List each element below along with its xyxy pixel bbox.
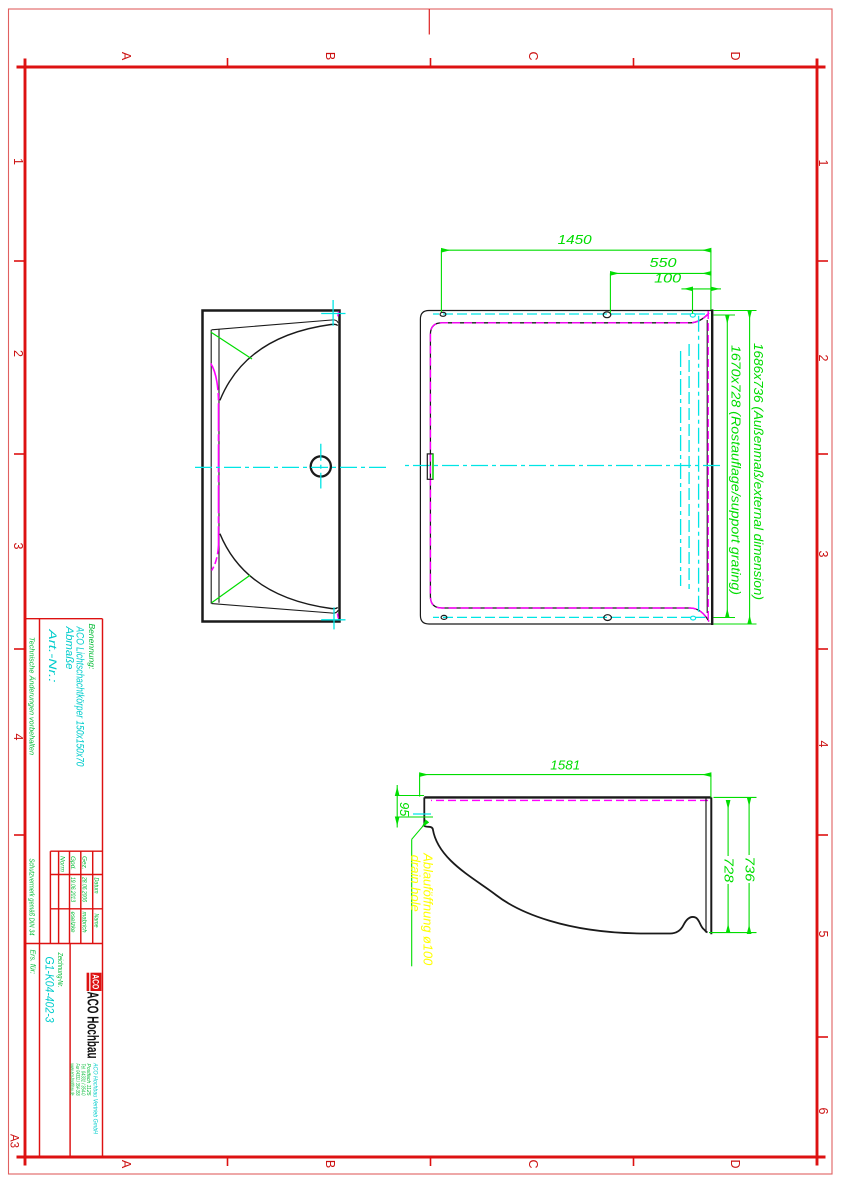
svg-text:100: 100 <box>654 271 682 286</box>
svg-text:D: D <box>728 1159 742 1168</box>
svg-text:Gez.: Gez. <box>81 856 88 870</box>
svg-text:C: C <box>526 1159 540 1168</box>
svg-text:1: 1 <box>816 160 830 167</box>
svg-text:19.06.2013: 19.06.2013 <box>69 877 76 902</box>
svg-text:2: 2 <box>816 355 830 362</box>
svg-text:ACO Hochbau: ACO Hochbau <box>84 992 101 1059</box>
svg-text:A3: A3 <box>8 1134 20 1148</box>
svg-text:5: 5 <box>816 931 830 938</box>
svg-text:4: 4 <box>11 734 25 741</box>
svg-text:mabrich: mabrich <box>81 912 88 933</box>
svg-text:550: 550 <box>650 255 678 270</box>
svg-text:Datum: Datum <box>93 878 100 894</box>
svg-text:Norm: Norm <box>59 856 66 872</box>
svg-text:Technische Änderungen vorbehal: Technische Änderungen vorbehalten <box>28 637 36 755</box>
svg-text:ACO Hochbau Vertrieb GmbH: ACO Hochbau Vertrieb GmbH <box>92 1062 98 1134</box>
svg-text:1: 1 <box>11 158 25 165</box>
svg-text:Abmaße: Abmaße <box>63 625 75 669</box>
svg-text:ACO Lichtschachtkörper 150x150: ACO Lichtschachtkörper 150x150x70 <box>74 626 86 767</box>
svg-text:Ers. für:: Ers. für: <box>29 950 36 975</box>
svg-text:Art.-Nr.:: Art.-Nr.: <box>46 628 58 682</box>
svg-text:eselzke: eselzke <box>69 912 76 933</box>
svg-text:Fax 04331 / 354-358: Fax 04331 / 354-358 <box>74 1064 80 1096</box>
svg-text:1686x736 (Außenmaß/external di: 1686x736 (Außenmaß/external dimension) <box>751 343 766 600</box>
svg-text:A: A <box>119 1160 133 1169</box>
svg-text:www.aco-hochbau.de: www.aco-hochbau.de <box>69 1064 75 1096</box>
svg-text:736: 736 <box>743 857 758 883</box>
svg-text:Postfach 1125: Postfach 1125 <box>85 1064 91 1096</box>
svg-text:drain hole: drain hole <box>408 855 423 912</box>
svg-text:A: A <box>119 52 133 61</box>
svg-text:1450: 1450 <box>558 232 593 247</box>
svg-text:Benennung:: Benennung: <box>87 624 97 670</box>
svg-text:6: 6 <box>816 1108 830 1115</box>
svg-text:Gpd.: Gpd. <box>69 856 76 870</box>
svg-text:3: 3 <box>11 543 25 550</box>
svg-text:D: D <box>728 51 742 60</box>
svg-text:Zeichnung-Nr.: Zeichnung-Nr. <box>56 952 63 988</box>
svg-text:C: C <box>526 51 540 60</box>
svg-text:28.06.2006: 28.06.2006 <box>81 876 88 902</box>
svg-text:95: 95 <box>397 802 412 817</box>
svg-text:B: B <box>323 52 337 60</box>
svg-text:728: 728 <box>722 858 737 884</box>
svg-text:4: 4 <box>816 741 830 748</box>
svg-text:2: 2 <box>11 350 25 357</box>
svg-text:Tel. 04331 / 354-0: Tel. 04331 / 354-0 <box>80 1064 86 1096</box>
svg-text:3: 3 <box>816 551 830 558</box>
svg-text:Name: Name <box>93 914 100 928</box>
svg-text:ACO: ACO <box>91 974 101 989</box>
svg-text:1581: 1581 <box>550 758 580 773</box>
svg-text:G1-K04-402-3: G1-K04-402-3 <box>43 957 57 1023</box>
svg-text:1670x728 (Rostauflage/support: 1670x728 (Rostauflage/support grating) <box>729 345 744 595</box>
svg-text:B: B <box>323 1160 337 1168</box>
svg-text:Schutzvermerk gemäß DIN 34: Schutzvermerk gemäß DIN 34 <box>28 859 35 936</box>
